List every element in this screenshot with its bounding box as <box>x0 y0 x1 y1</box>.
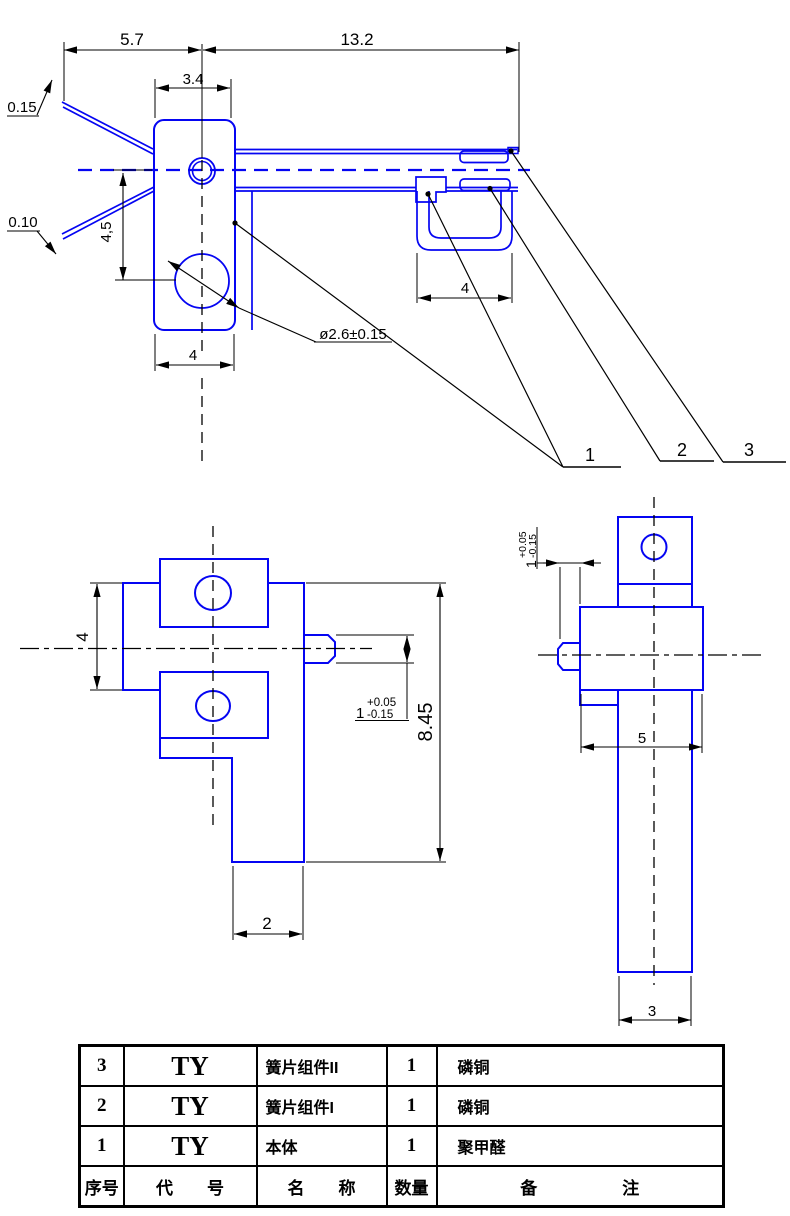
part-qty: 1 <box>387 1126 437 1166</box>
leader-dot-tab <box>487 186 492 191</box>
header-note: 备 注 <box>437 1166 724 1207</box>
dim-3-4-label: 3.4 <box>183 71 204 88</box>
part-name: 簧片组件II <box>257 1046 387 1087</box>
parts-table: 3 TY 簧片组件II 1 磷铜 2 TY 簧片组件I 1 磷铜 1 TY 本体… <box>78 1044 725 1208</box>
top-view-part-outline <box>62 102 518 330</box>
dim-5-label: 5 <box>638 730 646 747</box>
header-name: 名 称 <box>257 1166 387 1207</box>
header-no: 序号 <box>80 1166 124 1207</box>
part-no: 2 <box>80 1086 124 1126</box>
dim-0-15-label: 0.15 <box>7 99 36 116</box>
side-view-dimensions <box>537 527 702 1026</box>
dim-8-45-label: 8.45 <box>415 703 437 742</box>
table-header-row: 序号 代 号 名 称 数量 备 注 <box>80 1166 724 1207</box>
leader-dot-arm <box>508 148 513 153</box>
large-hole <box>175 254 229 308</box>
side-tol-nominal: 1 <box>523 560 539 568</box>
dim-5-7-label: 5.7 <box>120 30 144 49</box>
part-material: 磷铜 <box>437 1086 724 1126</box>
part-material: 磷铜 <box>437 1046 724 1087</box>
leader-0-15 <box>37 80 52 115</box>
dim-4-hook-label: 4 <box>461 280 469 297</box>
dim-dia-label: ø2.6±0.15 <box>319 326 386 343</box>
part-qty: 1 <box>387 1086 437 1126</box>
top-view-dimensions <box>7 42 786 467</box>
balloon-1: 1 <box>585 445 595 465</box>
hook-inner <box>429 191 501 238</box>
table-row: 1 TY 本体 1 聚甲醛 <box>80 1126 724 1166</box>
side-body <box>580 607 703 690</box>
front-view-part-outline <box>123 559 335 862</box>
dim-4-body-label: 4 <box>189 347 197 364</box>
part-name: 本体 <box>257 1126 387 1166</box>
side-tol-text: 1 +0.05 -0.15 <box>517 531 539 568</box>
dim-4-5-label: 4,5 <box>98 222 115 243</box>
balloon-3: 3 <box>744 440 754 460</box>
side-tol-minus: -0.15 <box>527 534 539 558</box>
side-step <box>580 690 618 705</box>
part-no: 3 <box>80 1046 124 1087</box>
part-code: TY <box>124 1126 257 1166</box>
table-row: 2 TY 簧片组件I 1 磷铜 <box>80 1086 724 1126</box>
drawing-canvas: 5.7 13.2 3.4 0.15 0.10 4,5 4 ø2.6±0.15 4… <box>0 0 790 1216</box>
contact-tab-lower <box>460 179 510 191</box>
front-right-column <box>160 583 304 862</box>
leader-dot-body <box>232 220 237 225</box>
part-no: 1 <box>80 1126 124 1166</box>
drawing-sheet: 5.7 13.2 3.4 0.15 0.10 4,5 4 ø2.6±0.15 4… <box>0 0 790 1216</box>
dim-3-label: 3 <box>648 1003 656 1020</box>
dim-4-front-label: 4 <box>73 632 92 641</box>
balloon-leaders <box>235 151 723 467</box>
part-name: 簧片组件I <box>257 1086 387 1126</box>
side-tab-neck <box>618 584 692 607</box>
side-stem <box>618 690 692 972</box>
front-upper-block <box>160 559 268 627</box>
header-qty: 数量 <box>387 1166 437 1207</box>
balloon-underlines <box>563 461 786 467</box>
front-tol-plus: +0.05 <box>367 697 396 709</box>
side-view: 5 3 1 +0.05 -0.15 <box>517 497 762 1026</box>
front-view-dimensions <box>90 583 446 940</box>
part-qty: 1 <box>387 1046 437 1087</box>
leader-0-10 <box>37 231 56 254</box>
front-lower-block <box>160 672 268 738</box>
front-view: 4 8.45 2 1 +0.05 -0.15 <box>20 526 446 940</box>
part-code: TY <box>124 1046 257 1087</box>
part-code: TY <box>124 1086 257 1126</box>
part-material: 聚甲醛 <box>437 1126 724 1166</box>
header-code: 代 号 <box>124 1166 257 1207</box>
side-extension-lines <box>537 527 702 1026</box>
dim-13-2-label: 13.2 <box>340 30 373 49</box>
top-view: 5.7 13.2 3.4 0.15 0.10 4,5 4 ø2.6±0.15 4… <box>7 30 786 467</box>
table-row: 3 TY 簧片组件II 1 磷铜 <box>80 1046 724 1087</box>
side-top-tab <box>618 517 692 584</box>
front-left-bracket <box>123 583 160 690</box>
side-nub <box>558 643 580 670</box>
extension-lines <box>64 42 519 371</box>
dim-2-label: 2 <box>262 914 271 933</box>
front-tol-nominal: 1 <box>356 705 364 722</box>
latch-block <box>416 177 446 202</box>
front-tol-minus: -0.15 <box>367 709 393 721</box>
spring-leaf-upper <box>62 102 153 154</box>
leader-dot-block <box>425 191 430 196</box>
balloon-2: 2 <box>677 440 687 460</box>
front-extension-lines <box>90 583 446 940</box>
dim-0-10-label: 0.10 <box>8 214 37 231</box>
